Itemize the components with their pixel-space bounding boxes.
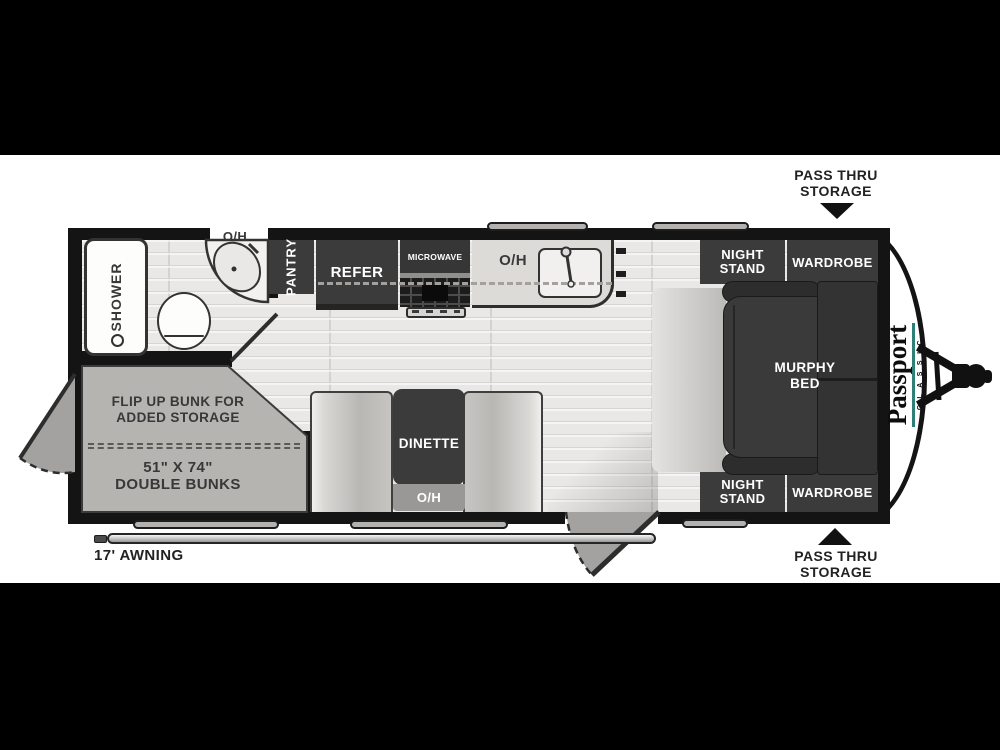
bunk-type-label: DOUBLE BUNKS	[78, 476, 278, 493]
toilet	[157, 292, 211, 350]
dinette-label: DINETTE	[399, 436, 460, 451]
kitchen-sink	[538, 248, 602, 298]
pass-thru-storage-bottom-label: PASS THRU STORAGE	[786, 548, 886, 580]
window-top-kitchen	[487, 222, 588, 231]
bunk-fold-dashed-line	[88, 443, 300, 449]
shower-label: SHOWER	[108, 263, 124, 332]
awning-label: 17' AWNING	[94, 547, 224, 564]
counter-edge-tick	[616, 291, 626, 297]
awning-bar	[107, 533, 656, 544]
brand-logo-wordmark: Passport	[884, 323, 915, 428]
pass-thru-top-arrow-icon	[820, 203, 854, 219]
wardrobe-bottom: WARDROBE	[787, 472, 878, 512]
dinette-overhead-label: O/H	[417, 490, 441, 505]
pantry-label: PANTRY	[284, 238, 299, 296]
dinette-bench-right	[463, 391, 543, 512]
brand-logo: Passport CLASSIC	[881, 297, 927, 453]
dinette-overhead: O/H	[393, 484, 465, 511]
refrigerator-label: REFER	[331, 264, 384, 281]
brand-logo-series: CLASSIC	[917, 334, 924, 416]
night-stand-bottom-label-line1: NIGHT	[721, 478, 763, 492]
stove-drawer	[406, 307, 466, 318]
pass-thru-top-line2: STORAGE	[786, 183, 886, 199]
window-bottom-dinette	[350, 520, 508, 529]
microwave: MICROWAVE	[400, 240, 470, 273]
night-stand-top: NIGHT STAND	[700, 240, 785, 284]
dinette-bench-left	[310, 391, 393, 512]
cooktop-burner-icon	[422, 285, 448, 301]
night-stand-bottom: NIGHT STAND	[700, 472, 785, 512]
overhead-cabinet-dashed-line	[318, 282, 612, 285]
pass-thru-storage-top-label: PASS THRU STORAGE	[786, 167, 886, 199]
pass-thru-bottom-line2: STORAGE	[786, 564, 886, 580]
entry-floor-shading	[548, 432, 658, 512]
wardrobe-top-label: WARDROBE	[792, 255, 872, 270]
wall-top	[68, 228, 890, 240]
shower: SHOWER	[84, 238, 148, 356]
pantry: PANTRY	[268, 240, 314, 294]
window-bottom-bunks	[133, 520, 279, 529]
wardrobe-top: WARDROBE	[787, 240, 878, 284]
murphy-bed-platform	[652, 288, 726, 472]
night-stand-top-label-line2: STAND	[720, 262, 766, 276]
pass-thru-bottom-arrow-icon	[818, 528, 852, 545]
pass-thru-bottom-line1: PASS THRU	[786, 548, 886, 564]
pass-thru-top-line1: PASS THRU	[786, 167, 886, 183]
stove-drawer-vents	[412, 310, 460, 313]
night-stand-top-label-line1: NIGHT	[721, 248, 763, 262]
bunk-note-line1: FLIP UP BUNK FOR	[78, 394, 278, 409]
kitchen-overhead-label: O/H	[490, 252, 536, 269]
shower-drain-icon	[111, 334, 124, 347]
murphy-bed-label-line1: MURPHY	[740, 360, 870, 376]
toilet-seat-line	[164, 335, 204, 338]
dinette-table: DINETTE	[393, 389, 465, 485]
murphy-bed-label-line2: BED	[740, 376, 870, 392]
counter-edge-tick	[616, 248, 626, 254]
counter-edge-tick	[616, 271, 626, 277]
microwave-label: MICROWAVE	[408, 252, 463, 262]
murphy-bed-label: MURPHY BED	[740, 360, 870, 392]
window-bottom-bedroom	[682, 519, 748, 528]
refrigerator: REFER	[316, 240, 398, 310]
bunk-note-line2: ADDED STORAGE	[78, 410, 278, 425]
window-top-bedroom	[652, 222, 749, 231]
night-stand-bottom-label-line2: STAND	[720, 492, 766, 506]
floorplan-canvas: SHOWER O/H PANTRY REFER MICROWAVE O/H NI…	[0, 0, 1000, 750]
wardrobe-bottom-label: WARDROBE	[792, 485, 872, 500]
awning-end-cap	[94, 535, 107, 543]
murphy-bed-seat-seam	[733, 305, 735, 449]
bunk-size-label: 51" X 74"	[78, 459, 278, 476]
bathroom-overhead-label: O/H	[206, 229, 264, 244]
